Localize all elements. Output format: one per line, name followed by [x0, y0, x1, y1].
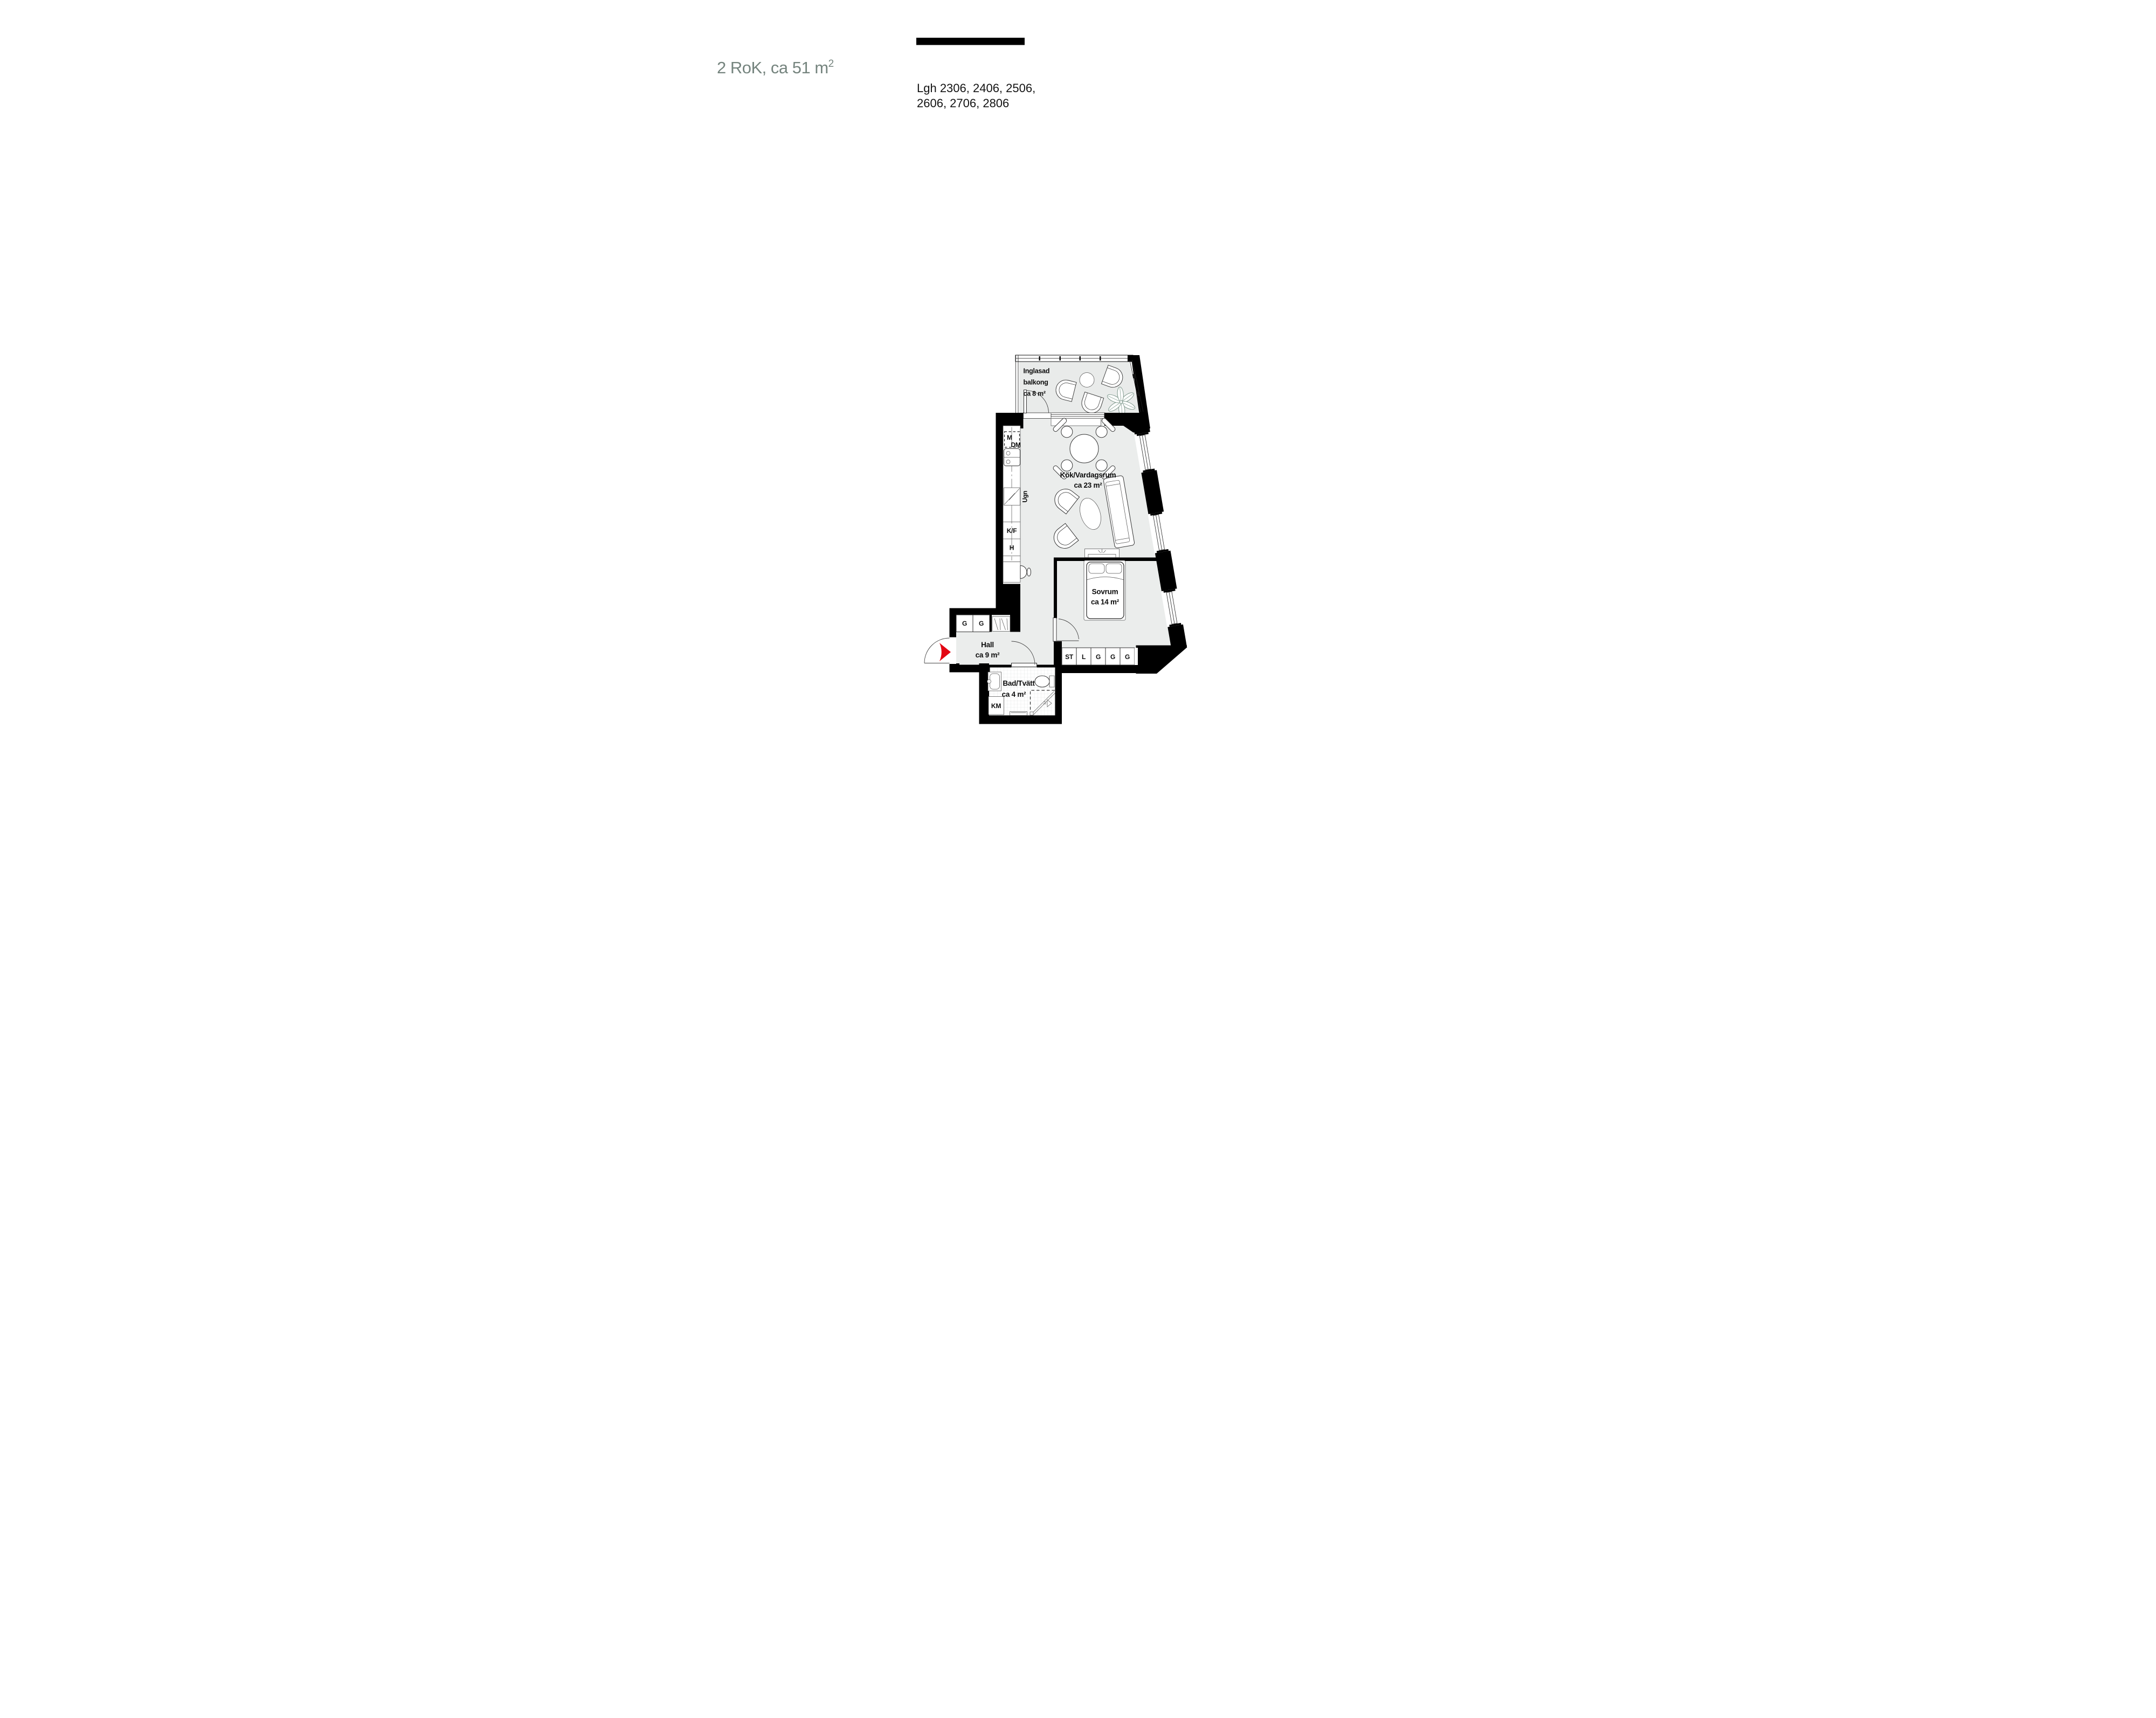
- wall-bath-left: [979, 663, 990, 724]
- closet-label-g: G: [1125, 653, 1130, 661]
- balcony-table-icon: [1080, 373, 1094, 387]
- hall-closet-label-g1: G: [962, 620, 967, 627]
- wall-kitchen-block: [996, 584, 1021, 608]
- closet-filler: [1135, 648, 1138, 665]
- wall-bath-top-left: [989, 665, 1012, 668]
- kitchen-living-area: ca 23 m²: [1074, 481, 1102, 489]
- header-rule-bar: [916, 38, 1025, 45]
- bath-door-leaf: [1012, 663, 1037, 667]
- wall-bedroom-left-lower: [1054, 641, 1062, 666]
- dishwasher-label: DM: [1011, 441, 1021, 449]
- kitchen-living-label: Kök/Vardagsrum: [1060, 471, 1116, 479]
- oven-label: Ugn: [1022, 490, 1029, 502]
- wall-hall-top: [950, 608, 1021, 615]
- dining-table-icon: [1070, 434, 1098, 463]
- bedroom-door-leaf: [1053, 618, 1056, 642]
- bedroom-closets: ST L G G G: [1062, 648, 1138, 665]
- bath-area: ca 4 m²: [1002, 690, 1027, 698]
- tv-bench-icon: [1085, 549, 1120, 558]
- wall-bath-top-right: [1037, 665, 1055, 668]
- closet-label-g: G: [1110, 653, 1115, 661]
- microwave-label: M: [1007, 434, 1012, 441]
- closet-label-g: G: [1096, 653, 1101, 661]
- washing-machine-icon: KM: [989, 697, 1004, 715]
- fridge-freezer-label: K/F: [1007, 527, 1017, 535]
- toilet-icon: [1035, 676, 1054, 687]
- sink-icon: [1004, 449, 1020, 466]
- unit-numbers-line2: 2606, 2706, 2806: [917, 96, 1009, 110]
- coat-rack-icon: [992, 616, 1010, 632]
- wall-hall-nib: [1010, 615, 1020, 632]
- washing-machine-label: KM: [991, 702, 1001, 710]
- cooktop-icon: [1004, 488, 1020, 505]
- hall-area: ca 9 m²: [976, 651, 1000, 659]
- unit-numbers-line1: Lgh 2306, 2406, 2506,: [917, 81, 1035, 95]
- hall-closet-label-g2: G: [979, 620, 984, 627]
- header: 2 RoK, ca 51 m2 Lgh 2306, 2406, 2506, 26…: [717, 38, 1035, 110]
- wall-left: [996, 428, 1004, 584]
- bath-bench-icon: [1010, 712, 1027, 716]
- floor-plan-canvas: 2 RoK, ca 51 m2 Lgh 2306, 2406, 2506, 26…: [539, 0, 1617, 859]
- closet-label-l: L: [1082, 653, 1086, 661]
- wall-closet-divider: [990, 615, 992, 632]
- balcony-label-line3: ca 8 m²: [1024, 390, 1046, 398]
- hall-label: Hall: [981, 641, 994, 649]
- entrance-opening: [950, 638, 957, 664]
- wall-bedroom-left: [1054, 561, 1057, 619]
- wall-bath-right: [1055, 665, 1062, 724]
- balcony-label-line1: Inglasad: [1024, 368, 1050, 375]
- bedroom-area: ca 14 m²: [1091, 598, 1120, 606]
- bedroom-label: Sovrum: [1092, 588, 1118, 596]
- balcony-label-line2: balkong: [1024, 379, 1048, 386]
- entry-arrow-icon: [939, 643, 951, 661]
- bath-label: Bad/Tvätt: [1003, 680, 1035, 688]
- closet-label-st: ST: [1065, 653, 1074, 661]
- wall-bath-bottom: [979, 716, 1062, 724]
- page-title: 2 RoK, ca 51 m2: [717, 58, 834, 77]
- wall-bedroom-bottom: [1061, 665, 1140, 673]
- tall-cabinet-label: H: [1010, 544, 1014, 552]
- floor-plan-page: 2 RoK, ca 51 m2 Lgh 2306, 2406, 2506, 26…: [539, 0, 1617, 859]
- washbasin-icon: [987, 672, 1001, 691]
- wall-corner-chamfer: [1136, 646, 1187, 674]
